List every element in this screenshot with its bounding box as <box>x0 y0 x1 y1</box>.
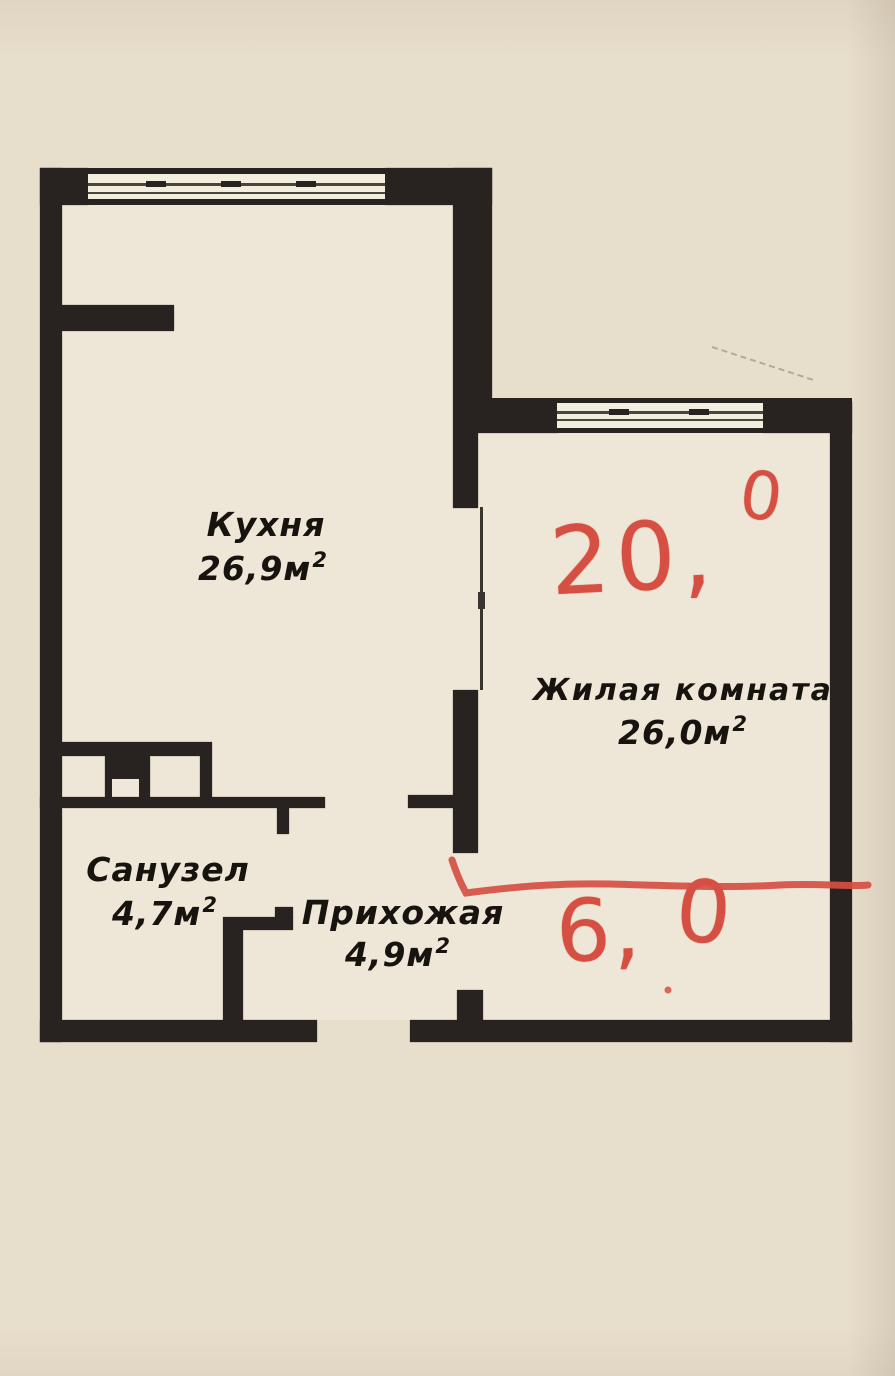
wall-living-top-right <box>763 402 852 433</box>
room-label-living: Жилая комната <box>533 676 833 706</box>
room-area-hallway: 4,9м2 <box>345 938 451 971</box>
wall-kitchen-right-upper <box>453 168 492 432</box>
wall-outer-right <box>830 402 852 1042</box>
duct-divider <box>105 756 150 798</box>
paper-shading-bottom <box>0 1326 895 1376</box>
room-area-hallway-value: 4,9м <box>345 935 434 974</box>
room-name-hallway: Прихожая <box>302 893 505 932</box>
room-name-bathroom: Санузел <box>86 850 250 889</box>
wall-kitchen-right-lower <box>453 432 478 508</box>
room-area-bathroom-sup: 2 <box>202 893 218 917</box>
window-mullion-mark <box>689 409 709 415</box>
wall-bathroom-L-horizontal <box>223 917 293 930</box>
wall-outer-bottom-left <box>40 1020 317 1042</box>
duct-notch <box>112 779 139 798</box>
window-living-glass-line <box>557 411 763 414</box>
wall-kitchen-stub <box>62 305 174 331</box>
duct-top <box>48 742 212 756</box>
wall-bathroom-right <box>223 930 243 1022</box>
room-area-living: 26,0м2 <box>618 716 748 749</box>
room-area-bathroom-value: 4,7м <box>112 894 201 933</box>
room-name-living: Жилая комната <box>533 673 833 708</box>
wall-outer-left <box>40 168 62 1042</box>
wall-living-top-left <box>478 402 558 433</box>
opening-line-blob <box>478 592 485 609</box>
room-area-kitchen-value: 26,9м <box>198 549 311 588</box>
window-living-glass-line <box>557 419 763 421</box>
window-mullion-mark <box>146 181 166 187</box>
duct-right <box>200 756 212 798</box>
room-area-living-value: 26,0м <box>618 713 731 752</box>
paper-shading-right <box>847 0 895 1376</box>
room-label-bathroom: Санузел <box>86 853 250 886</box>
window-mullion-mark <box>609 409 629 415</box>
wall-hallway-living <box>453 690 478 853</box>
room-area-kitchen-sup: 2 <box>312 548 328 572</box>
room-name-kitchen: Кухня <box>207 505 326 544</box>
door-jamb-bathroom-top <box>277 808 289 834</box>
wall-bathroom-top <box>40 797 325 808</box>
room-label-hallway: Прихожая <box>302 896 505 929</box>
room-area-kitchen: 26,9м2 <box>198 552 328 585</box>
wall-outer-bottom-right <box>410 1020 852 1042</box>
window-living-room <box>557 403 763 433</box>
window-kitchen <box>88 168 385 205</box>
room-area-hallway-sup: 2 <box>435 934 451 958</box>
wall-hallway-top <box>408 795 457 808</box>
annotation-hallway-value: 6, <box>555 887 644 976</box>
wall-kitchen-top-left <box>40 168 88 205</box>
room-label-kitchen: Кухня <box>207 508 326 541</box>
window-mullion-mark <box>296 181 316 187</box>
annotation-hallway-value-tail: 0 <box>672 868 734 958</box>
door-jamb-entry <box>457 990 483 1022</box>
annotation-living-value: 20, <box>548 508 720 611</box>
window-mullion-mark <box>221 181 241 187</box>
room-area-bathroom: 4,7м2 <box>112 897 218 930</box>
room-area-living-sup: 2 <box>732 712 748 736</box>
paper-shading-top <box>0 0 895 60</box>
window-kitchen-glass-line <box>88 192 385 194</box>
pencil-mark <box>712 346 813 381</box>
